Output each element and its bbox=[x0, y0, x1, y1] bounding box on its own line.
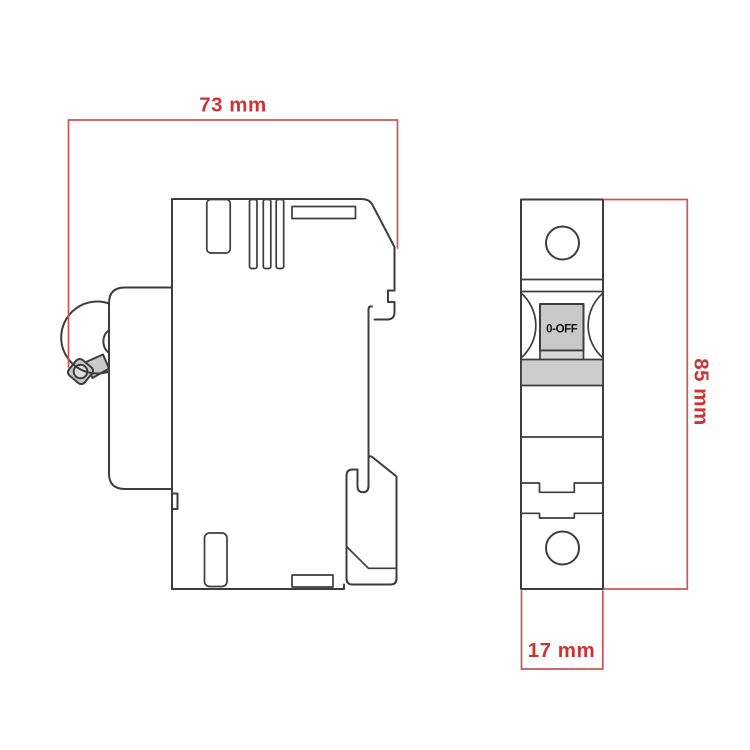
front-view: 0-OFF bbox=[521, 200, 603, 590]
din-rail-clip bbox=[347, 456, 397, 584]
circuit-breaker-dimension-drawing: 0-OFF 73 mm 85 mm 17 mm bbox=[0, 0, 750, 750]
dimension-depth-text: 17 mm bbox=[528, 639, 595, 662]
dimension-height-label: 85 mm bbox=[690, 358, 713, 425]
dimension-diagram-page: 0-OFF 73 mm 85 mm 17 mm bbox=[0, 0, 750, 750]
bottom-slot bbox=[205, 533, 228, 587]
toggle-knob-base bbox=[540, 351, 584, 361]
vent-slot bbox=[250, 200, 258, 269]
bottom-terminal-screw bbox=[546, 532, 579, 565]
top-terminal-screw bbox=[546, 227, 579, 260]
dimension-depth: 17 mm bbox=[522, 591, 603, 669]
dimension-height: 85 mm bbox=[604, 200, 713, 590]
dimension-height-text: 85 mm bbox=[690, 358, 713, 425]
dimension-width-label: 73 mm bbox=[199, 94, 266, 117]
dimension-height-lines bbox=[604, 200, 687, 590]
toggle-housing bbox=[109, 288, 172, 490]
top-slot bbox=[207, 200, 230, 254]
vent-slot bbox=[276, 200, 284, 269]
dimension-depth-label: 17 mm bbox=[528, 639, 595, 662]
vent-slot bbox=[263, 200, 271, 269]
bottom-vent-window bbox=[292, 575, 333, 587]
dimension-width-text: 73 mm bbox=[199, 94, 266, 117]
toggle-label: 0-OFF bbox=[546, 324, 578, 336]
toggle-lever bbox=[66, 355, 109, 386]
side-view bbox=[61, 199, 396, 589]
vent-slots bbox=[250, 200, 284, 269]
collar-band bbox=[521, 360, 603, 386]
top-vent-window bbox=[292, 207, 356, 219]
